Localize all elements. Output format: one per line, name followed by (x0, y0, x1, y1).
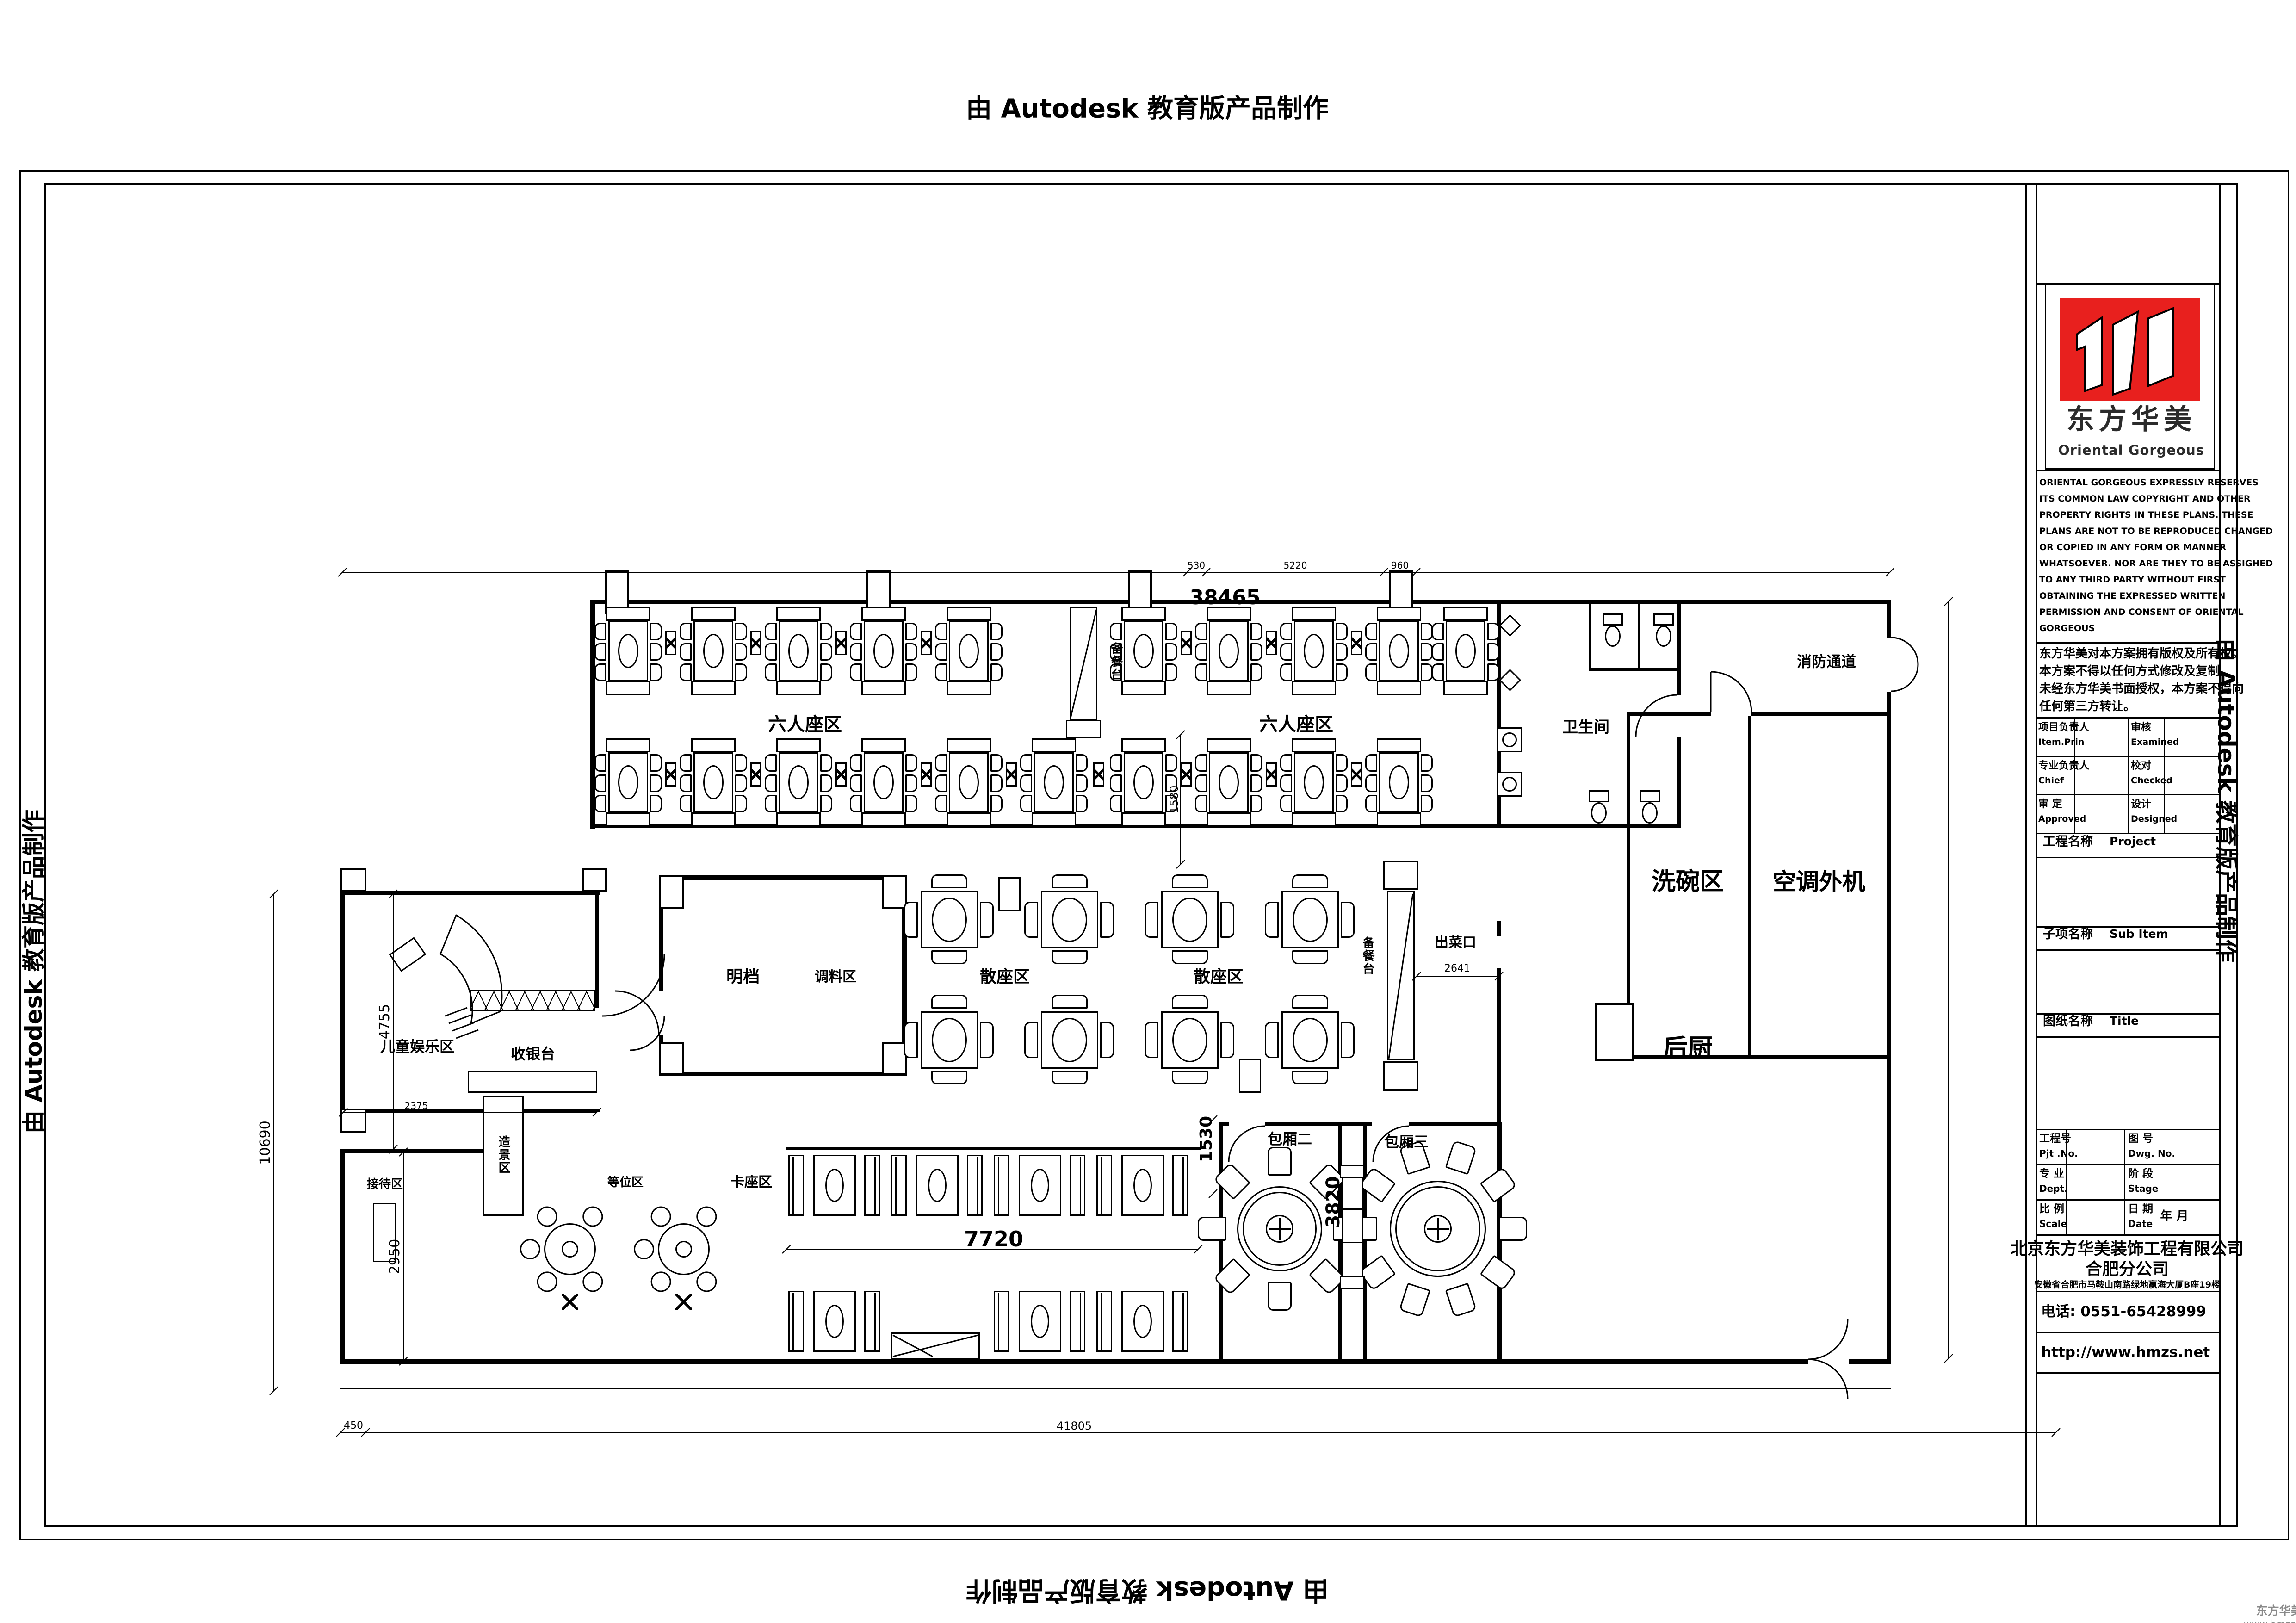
chair (1100, 1022, 1114, 1058)
table-end-seat (861, 738, 906, 752)
area-label-six-seat-b: 六人座区 (1259, 715, 1333, 734)
chair (935, 754, 947, 772)
chair (594, 774, 606, 792)
chair (1336, 754, 1348, 772)
service-stand (921, 631, 932, 655)
stool (998, 877, 1021, 911)
table-end-seat (947, 738, 991, 752)
chair (1110, 623, 1122, 640)
dimension-text: 4755 (378, 1004, 392, 1039)
hub-line (1437, 1218, 1439, 1240)
corner-site: www.hmzs.net (2244, 1618, 2296, 1623)
bench-back (998, 1293, 999, 1350)
copyright-line: WHATSOEVER. NOR ARE THEY TO BE ASSIGHED (2039, 559, 2273, 568)
table-top (1172, 1018, 1207, 1062)
booth-bench (1172, 1155, 1188, 1216)
title-grid-line (2036, 949, 2219, 951)
chair (594, 663, 606, 681)
field-label-en: Item.Prin (2038, 738, 2084, 747)
chair (1265, 1022, 1279, 1058)
rights-line: 任何第三方转让。 (2039, 700, 2135, 712)
chair (1213, 1258, 1250, 1295)
area-label-food-outlet: 出菜口 (1435, 936, 1476, 950)
chair (820, 795, 832, 812)
chair (1020, 774, 1032, 792)
chair (1195, 623, 1207, 640)
bench-back (895, 1157, 897, 1214)
chair (1052, 874, 1088, 888)
chair (680, 795, 692, 812)
prep-counter-mid (1387, 891, 1415, 1060)
bench-back (1101, 1157, 1102, 1214)
sink-basin (1502, 732, 1517, 747)
chair (1145, 1022, 1158, 1058)
toilet-tank (1653, 613, 1674, 626)
field-label-cn: 阶 段 (2128, 1169, 2153, 1179)
wall (1627, 712, 1711, 716)
table-end-seat (691, 738, 736, 752)
chair (1445, 1283, 1477, 1318)
company-address: 安徽省合肥市马鞍山南路绿地赢海大厦B座19楼 (2034, 1281, 2220, 1289)
urinal (1499, 614, 1521, 637)
wall (659, 875, 907, 880)
column (340, 1109, 366, 1133)
field-label-cn: 专业负责人 (2038, 761, 2089, 771)
table-end-seat (691, 681, 736, 695)
chair (1280, 754, 1292, 772)
field-label-en: Scale (2039, 1219, 2067, 1228)
field-label-en: Examined (2131, 738, 2179, 747)
chair (1421, 754, 1433, 772)
chair (1365, 754, 1377, 772)
wall (659, 1072, 907, 1076)
chair (1365, 663, 1377, 681)
chair (650, 774, 662, 792)
chair (680, 774, 692, 792)
copyright-line: TO ANY THIRD PARTY WITHOUT FIRST (2039, 576, 2226, 584)
chair (990, 795, 1003, 812)
waiting-table-center (675, 1241, 692, 1258)
table-end-seat (1121, 812, 1166, 826)
field-label-cn: 工程号 (2039, 1134, 2071, 1144)
table-top (1044, 765, 1064, 799)
chair (1365, 643, 1377, 661)
chair (850, 774, 862, 792)
table-end-seat (1207, 738, 1251, 752)
field-label-en: Date (2128, 1219, 2153, 1228)
chair (905, 643, 917, 661)
table-top (1133, 634, 1154, 668)
chair (1195, 643, 1207, 661)
booth-bench (1070, 1291, 1085, 1352)
service-stand (750, 762, 761, 787)
title-grid-line (2036, 857, 2219, 858)
chair (1100, 902, 1114, 938)
table-end-seat (947, 681, 991, 695)
chair (990, 754, 1003, 772)
table-end-seat (1207, 681, 1251, 695)
title-grid-line (2219, 183, 2221, 1525)
table-top (825, 1305, 844, 1338)
chair (905, 795, 917, 812)
title-grid-line (2036, 1291, 2219, 1292)
table-top (928, 1169, 947, 1202)
title-grid-line (2036, 1129, 2219, 1130)
prep-counter-top (1070, 607, 1097, 721)
chair (1265, 902, 1279, 938)
rights-line: 未经东方华美书面授权，本方案不得向 (2039, 683, 2244, 695)
table-end-seat (1377, 681, 1421, 695)
chair (1341, 902, 1355, 938)
dimension-text: 38465 (1189, 588, 1260, 608)
area-label-restroom: 卫生间 (1562, 719, 1609, 735)
corner-watermark: 东方华美 www.hmzs.net (2244, 1602, 2296, 1623)
logo-111-icon (2060, 298, 2200, 401)
area-label-fire-exit: 消防通道 (1797, 654, 1856, 669)
chair (1250, 643, 1262, 661)
chair (820, 663, 832, 681)
field-label-cn: 审 定 (2038, 799, 2062, 810)
field-label-en: Stage (2128, 1184, 2158, 1193)
column (882, 875, 907, 909)
wall (1589, 600, 1591, 669)
dimension-text: 1530 (1198, 1116, 1215, 1162)
chair (1250, 754, 1262, 772)
table-top (788, 634, 809, 668)
table-end-seat (691, 607, 736, 621)
corner-brand: 东方华美 (2244, 1602, 2296, 1618)
chair (1076, 795, 1088, 812)
chair (765, 623, 777, 640)
sink-basin (1502, 777, 1517, 792)
service-stand (1006, 762, 1017, 787)
company-branch: 合肥分公司 (2086, 1261, 2169, 1278)
service-stand (921, 762, 932, 787)
round-stool (520, 1239, 540, 1259)
chair (820, 623, 832, 640)
sofa-arm (1340, 1276, 1365, 1289)
table-end-seat (1377, 738, 1421, 752)
table-top (1304, 634, 1324, 668)
wall (340, 1149, 345, 1360)
table-top (1293, 1018, 1328, 1062)
dimension-text: 5220 (1284, 561, 1307, 570)
bench-back (792, 1157, 794, 1214)
chair (1268, 1282, 1292, 1311)
chair (1165, 663, 1177, 681)
chair (1195, 754, 1207, 772)
chair (1165, 754, 1177, 772)
chair (735, 774, 747, 792)
toilet-tank (1640, 790, 1660, 802)
chair (1020, 795, 1032, 812)
table-end-seat (776, 607, 821, 621)
table-end-seat (861, 681, 906, 695)
field-label-cn: 项目负责人 (2038, 723, 2089, 733)
title-grid-line (2036, 1036, 2219, 1038)
chair (650, 623, 662, 640)
chair (1172, 995, 1208, 1009)
chair (1487, 643, 1499, 661)
chair (1250, 795, 1262, 812)
column (659, 875, 684, 909)
toilet-tank (1589, 790, 1609, 802)
table-top (703, 765, 724, 799)
bench-back (792, 1293, 794, 1350)
dimension-text: 3820 (1324, 1176, 1343, 1227)
booth-bench (788, 1291, 804, 1352)
chair (850, 754, 862, 772)
chair (820, 754, 832, 772)
table-end-seat (947, 607, 991, 621)
table-end-seat (776, 681, 821, 695)
chair (1250, 663, 1262, 681)
table-end-seat (1292, 738, 1336, 752)
table-top (788, 765, 809, 799)
booth-bench (967, 1155, 983, 1216)
booth-bench (1096, 1155, 1112, 1216)
table-top (1031, 1169, 1049, 1202)
table-end-seat (1443, 607, 1488, 621)
toilet-bowl (1591, 802, 1607, 824)
wall (1589, 668, 1681, 671)
chair (990, 623, 1003, 640)
booth-bench (1070, 1155, 1085, 1216)
bench-back (1080, 1157, 1081, 1214)
area-label-scenery: 造景区 (497, 1135, 509, 1174)
chair (931, 995, 967, 1009)
rights-line: 本方案不得以任何方式修改及复制。 (2039, 665, 2232, 677)
area-label-waiting: 等位区 (607, 1177, 644, 1189)
service-stand (1266, 631, 1277, 655)
dimension-text: 41805 (1057, 1420, 1092, 1431)
table-end-seat (1207, 812, 1251, 826)
chair (1365, 774, 1377, 792)
table-end-seat (1032, 812, 1076, 826)
chair (1498, 1217, 1527, 1241)
table-end-seat (861, 607, 906, 621)
service-stand (1266, 762, 1277, 787)
wall (340, 891, 600, 895)
chair (1399, 1283, 1431, 1318)
table-top (959, 634, 979, 668)
bench-back (1101, 1293, 1102, 1350)
plant (675, 1294, 692, 1310)
table-top (618, 634, 638, 668)
title-grid-line (2036, 1372, 2219, 1374)
chair (735, 663, 747, 681)
section-label-cn: 工程名称 (2043, 836, 2093, 848)
wall (1363, 1122, 1367, 1360)
table-top (825, 1169, 844, 1202)
chair (1421, 663, 1433, 681)
chair (1341, 1022, 1355, 1058)
table-top (1052, 1018, 1087, 1062)
booth-bench (994, 1291, 1009, 1352)
wall (1338, 1122, 1342, 1360)
blueprint-sheet: 由 Autodesk 教育版产品制作 由 Autodesk 教育版产品制作 由 … (0, 0, 2296, 1623)
toilet-bowl (1605, 626, 1621, 647)
stool (1239, 1059, 1261, 1093)
chair (935, 643, 947, 661)
booth-bench (864, 1291, 880, 1352)
chair (650, 643, 662, 661)
service-stand (665, 762, 676, 787)
chair (765, 754, 777, 772)
area-label-prep-mid: 备餐台 (1362, 936, 1374, 975)
chair (1480, 1167, 1517, 1203)
chair (1220, 1022, 1234, 1058)
bench-back (874, 1157, 876, 1214)
chair (680, 643, 692, 661)
table-end-seat (1443, 681, 1488, 695)
prep-counter-low (891, 1332, 980, 1359)
chair (1172, 874, 1208, 888)
bench-back (874, 1293, 876, 1350)
chair (905, 754, 917, 772)
table-end-seat (606, 738, 650, 752)
column (340, 868, 366, 892)
area-label-room-2: 包厢二 (1268, 1132, 1312, 1146)
wall (1638, 600, 1640, 669)
chair (1110, 774, 1122, 792)
table-top (618, 765, 638, 799)
chair (735, 623, 747, 640)
chair (680, 663, 692, 681)
sofa-seam (1343, 1208, 1362, 1210)
dimension-text: 10690 (259, 1121, 272, 1165)
title-grid-line (2036, 1199, 2219, 1201)
waiting-table-center (562, 1241, 578, 1258)
field-label-en: Dept. (2039, 1184, 2068, 1193)
chair (1213, 1162, 1250, 1200)
chair (1280, 795, 1292, 812)
chair (594, 795, 606, 812)
chair (980, 902, 994, 938)
chair (680, 623, 692, 640)
play-equipment (389, 937, 426, 972)
chair (1110, 754, 1122, 772)
table-top (1133, 1169, 1152, 1202)
section-label-en: Project (2110, 836, 2156, 847)
wall (1499, 824, 1679, 828)
wall (1498, 1122, 1502, 1360)
chair (1336, 663, 1348, 681)
entry-bridge (470, 990, 595, 1011)
plant (562, 1294, 578, 1310)
chair (594, 643, 606, 661)
table-top (932, 898, 967, 942)
title-grid-line (2036, 717, 2219, 719)
table-top (873, 634, 894, 668)
chair (935, 623, 947, 640)
chair (820, 774, 832, 792)
table-top (1219, 634, 1239, 668)
service-stand (835, 762, 847, 787)
chair (1165, 623, 1177, 640)
chair (935, 795, 947, 812)
wall (1887, 713, 1891, 1360)
table-top (1133, 1305, 1152, 1338)
chair (1480, 1255, 1517, 1291)
wall (1409, 1122, 1502, 1126)
sofa-seam (1343, 1242, 1362, 1243)
area-label-open-counter: 明档 (726, 969, 760, 985)
table-end-seat (1121, 738, 1166, 752)
chair (735, 795, 747, 812)
urinal (1499, 669, 1521, 691)
chair (1024, 902, 1038, 938)
area-label-cashier: 收银台 (511, 1047, 555, 1061)
date-placeholder: 年 月 (2160, 1210, 2188, 1222)
chair (850, 623, 862, 640)
chair (1145, 902, 1158, 938)
chair (650, 754, 662, 772)
title-grid-line (2036, 833, 2219, 834)
section-label-en: Title (2110, 1015, 2139, 1027)
chair (765, 774, 777, 792)
area-label-ac-unit: 空调外机 (1773, 870, 1865, 893)
service-stand (1181, 631, 1192, 655)
table-top (1133, 765, 1154, 799)
booth-bench (891, 1155, 907, 1216)
area-label-kitchen: 后厨 (1663, 1036, 1713, 1061)
brand-name-cn: 东方华美 (2067, 406, 2196, 434)
chair (1365, 795, 1377, 812)
table-top (1052, 898, 1087, 942)
chair (1292, 950, 1328, 964)
table-end-seat (1121, 681, 1166, 695)
wall (786, 1147, 1201, 1150)
chair (1280, 663, 1292, 681)
brand-logo-111 (2060, 298, 2200, 401)
dimension-text: 530 (1188, 561, 1205, 570)
chair (1268, 1147, 1292, 1176)
field-label-cn: 图 号 (2128, 1134, 2153, 1144)
service-stand (835, 631, 847, 655)
chair (1024, 1022, 1038, 1058)
chair (1421, 623, 1433, 640)
chair (735, 643, 747, 661)
area-label-dishwash: 洗碗区 (1652, 870, 1724, 894)
chair (931, 950, 967, 964)
chair (1432, 663, 1444, 681)
booth-bench (788, 1155, 804, 1216)
chair (1250, 774, 1262, 792)
area-label-scatter-a: 散座区 (980, 969, 1030, 985)
table-end-seat (947, 812, 991, 826)
table-top (959, 765, 979, 799)
wall (1627, 787, 1629, 826)
chair (1198, 1217, 1226, 1241)
table-top (1304, 765, 1324, 799)
chair (905, 623, 917, 640)
chair (1280, 774, 1292, 792)
copyright-line: ORIENTAL GORGEOUS EXPRESSLY RESERVES (2039, 478, 2259, 487)
wall (1219, 1122, 1223, 1360)
title-grid-line (2036, 470, 2219, 471)
table-top (1389, 765, 1409, 799)
table-end-seat (1292, 681, 1336, 695)
chair (1336, 795, 1348, 812)
brand-name-en: Oriental Gorgeous (2058, 444, 2204, 457)
table-top (1455, 634, 1476, 668)
chair (931, 1071, 967, 1084)
dimension-text: 2641 (1444, 964, 1470, 974)
chair (765, 643, 777, 661)
bench-back (1182, 1293, 1184, 1350)
table-end-seat (1292, 812, 1336, 826)
